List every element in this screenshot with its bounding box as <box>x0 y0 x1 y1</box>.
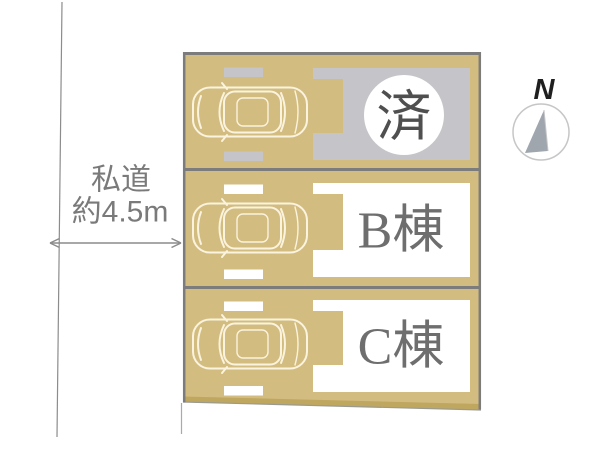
road-boundary-line <box>57 2 62 437</box>
parking-stripe <box>224 302 263 312</box>
parcels-block: 済 B棟 C棟 <box>182 52 482 434</box>
road-width-annotation: 私道 約4.5m <box>50 164 181 248</box>
compass: N <box>513 74 569 160</box>
parking-stripe <box>224 152 263 162</box>
site-plan-diagram: 私道 約4.5m 済 B棟 <box>0 0 600 450</box>
parking-stripe <box>224 185 263 195</box>
parcel-label-b: B棟 <box>358 203 445 260</box>
road-width-label-line2: 約4.5m <box>72 196 169 229</box>
parking-stripe <box>224 68 263 78</box>
parcel-label-sold: 済 <box>376 87 431 148</box>
parking-stripe <box>224 270 263 280</box>
road-width-arrow <box>50 239 181 248</box>
road-boundary <box>57 2 62 437</box>
road-width-label-line1: 私道 <box>91 164 151 197</box>
compass-north-label: N <box>534 74 556 106</box>
parcel-label-c: C棟 <box>358 319 445 376</box>
parking-stripe <box>224 386 263 396</box>
